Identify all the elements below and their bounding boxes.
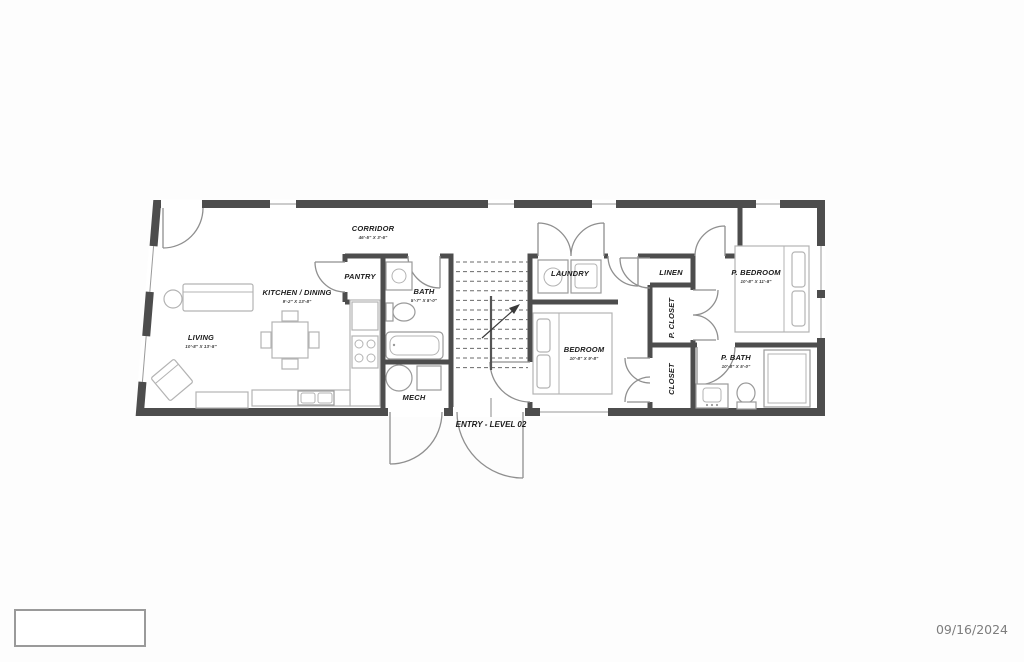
- p-bedroom-furniture: [735, 246, 809, 332]
- floor-plan: CORRIDOR 46'-5" X 3'-6" LIVING 10'-8" X …: [0, 0, 1024, 662]
- room-dim-bedroom: 10'-8" X 9'-8": [570, 356, 600, 361]
- room-label-closet: CLOSET: [667, 362, 676, 395]
- room-label-bedroom: BEDROOM: [564, 345, 605, 354]
- room-label-bath: BATH: [413, 287, 434, 296]
- fridge: [352, 302, 378, 330]
- room-label-corridor: CORRIDOR: [352, 224, 395, 233]
- room-label-laundry: LAUNDRY: [551, 269, 590, 278]
- date-label: 09/16/2024: [936, 622, 1008, 637]
- toilet: [737, 383, 755, 403]
- pillow: [537, 355, 550, 388]
- room-label-p-bedroom: P. BEDROOM: [731, 268, 781, 277]
- mech-unit: [417, 366, 441, 390]
- room-dim-p-bedroom: 10'-8" X 11'-8": [740, 279, 772, 284]
- chair: [282, 311, 298, 321]
- sofa: [183, 284, 253, 311]
- room-label-p-closet: P. CLOSET: [667, 297, 676, 339]
- chair: [261, 332, 271, 348]
- toilet-tank: [737, 402, 756, 409]
- shower: [764, 350, 810, 407]
- room-dim-corridor: 46'-5" X 3'-6": [358, 235, 389, 240]
- toilet: [393, 303, 415, 321]
- room-label-p-bath: P. BATH: [721, 353, 751, 362]
- chair: [282, 359, 298, 369]
- pillow: [537, 319, 550, 352]
- entry-label: ENTRY - LEVEL 02: [456, 420, 527, 429]
- room-label-kitchen-dining: KITCHEN / DINING: [262, 288, 331, 297]
- pillow: [792, 291, 805, 326]
- room-dim-bath: 5'-7" X 8'-0": [411, 298, 438, 303]
- pillow: [792, 252, 805, 287]
- side-table: [164, 290, 182, 308]
- room-label-pantry: PANTRY: [344, 272, 376, 281]
- room-dim-p-bath: 10'-8" X 5'-0": [722, 364, 752, 369]
- room-dim-living: 10'-8" X 13'-8": [185, 344, 217, 349]
- mech-exterior-door: [390, 412, 442, 464]
- title-block-box: [14, 609, 146, 647]
- bath-vanity: [386, 262, 412, 290]
- room-dim-kitchen-dining: 9'-2" X 13'-8": [283, 299, 313, 304]
- toilet-tank: [386, 303, 393, 321]
- dining-table: [272, 322, 308, 358]
- chair: [309, 332, 319, 348]
- water-heater: [386, 365, 412, 391]
- room-label-living: LIVING: [188, 333, 214, 342]
- room-label-linen: LINEN: [659, 268, 683, 277]
- console: [196, 392, 248, 408]
- room-label-mech: MECH: [403, 393, 426, 402]
